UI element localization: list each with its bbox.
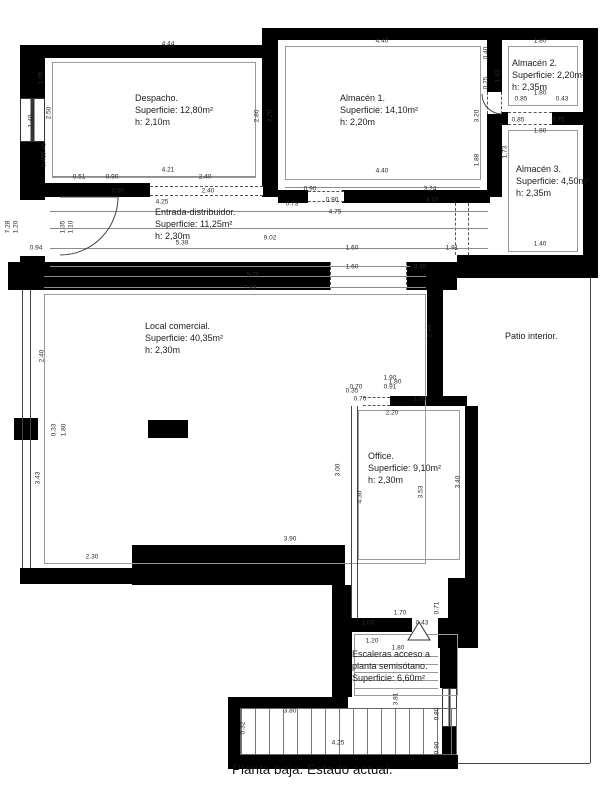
dimension-label: 1.40 bbox=[534, 241, 547, 248]
dimension-label: 3.10 bbox=[426, 197, 439, 204]
floor-plan: Despacho.Superficie: 12,80m²h: 2,10m Alm… bbox=[0, 0, 606, 789]
patio-boundary-line bbox=[457, 763, 590, 764]
dimension-label: 0.90 bbox=[112, 188, 125, 195]
dimension-label: 1.10 bbox=[68, 221, 75, 234]
dimension-label: 4.44 bbox=[162, 41, 175, 48]
dimension-label: 0.85 bbox=[512, 117, 525, 124]
dimension-label: 1.30 bbox=[414, 396, 427, 403]
dimension-label: 2.50 bbox=[46, 107, 53, 120]
dimension-label: 4.40 bbox=[376, 168, 389, 175]
dimension-label: 3.81 bbox=[393, 693, 400, 706]
dimension-label: 0.45 bbox=[414, 264, 427, 271]
dimension-label: 4.40 bbox=[376, 38, 389, 45]
room-label-local: Local comercial.Superficie: 40,35m²h: 2,… bbox=[145, 320, 223, 356]
dimension-label: 1.20 bbox=[366, 638, 379, 645]
dimension-label: 7.93 bbox=[244, 285, 257, 292]
dimension-label: 3.80 bbox=[284, 708, 297, 715]
dimension-label: 3.53 bbox=[418, 486, 425, 499]
dimension-label: 1.80 bbox=[61, 424, 68, 437]
dimension-label: 0.75 bbox=[483, 77, 490, 90]
dimension-label: 2.40 bbox=[39, 350, 46, 363]
dimension-label: 0.33 bbox=[51, 424, 58, 437]
wall bbox=[427, 278, 443, 400]
dimension-label: 3.00 bbox=[335, 464, 342, 477]
room-label-almacen3: Almacén 3.Superficie: 4,50m²h: 2,35m bbox=[516, 163, 589, 199]
wall bbox=[20, 45, 265, 58]
dimension-label: 9.02 bbox=[264, 235, 277, 242]
stair-treads bbox=[240, 708, 457, 755]
dimension-label: 1.80 bbox=[534, 128, 547, 135]
wall bbox=[228, 697, 348, 708]
dimension-line bbox=[44, 287, 426, 288]
dimension-label: 1.05 bbox=[38, 72, 45, 85]
dimension-line bbox=[50, 211, 488, 212]
wall bbox=[20, 568, 132, 584]
storefront-line bbox=[30, 290, 31, 568]
dimension-label: 0.80 bbox=[434, 708, 441, 721]
dimension-label: 2.30 bbox=[86, 554, 99, 561]
dimension-label: 1.80 bbox=[392, 645, 405, 652]
dimension-label: 3.20 bbox=[267, 110, 274, 123]
dimension-label: 0.51 bbox=[73, 174, 86, 181]
dimension-label: 3.43 bbox=[35, 472, 42, 485]
dimension-label: 2.44 bbox=[427, 325, 434, 338]
wall bbox=[465, 406, 478, 578]
wall bbox=[583, 28, 598, 278]
door-opening bbox=[487, 92, 502, 114]
dimension-label: 0.45 bbox=[41, 155, 48, 168]
dimension-label: 2.80 bbox=[254, 110, 261, 123]
dimension-label: 1.35 bbox=[60, 221, 67, 234]
dimension-label: 0.85 bbox=[515, 96, 528, 103]
dimension-label: 2.40 bbox=[199, 174, 212, 181]
dimension-label: 0.90 bbox=[434, 742, 441, 755]
dimension-label: 4.21 bbox=[162, 167, 175, 174]
dimension-label: 5.39 bbox=[176, 240, 189, 247]
room-label-almacen1: Almacén 1.Superficie: 14,10m²h: 2,20m bbox=[340, 92, 418, 128]
dimension-label: 0.75 bbox=[552, 117, 565, 124]
dimension-label: 0.70 bbox=[354, 396, 367, 403]
dimension-line bbox=[50, 248, 488, 249]
dimension-label: 7.28 bbox=[5, 221, 12, 234]
dimension-label: 1.91 bbox=[446, 245, 459, 252]
dimension-label: 4.75 bbox=[329, 209, 342, 216]
dimension-label: 3.24 bbox=[424, 186, 437, 193]
room-label-office: Office.Superficie: 9,10m²h: 2,30m bbox=[368, 450, 441, 486]
room-label-despacho: Despacho.Superficie: 12,80m²h: 2,10m bbox=[135, 92, 213, 128]
dimension-label: 0.90 bbox=[304, 186, 317, 193]
dimension-label: 0.73 bbox=[286, 201, 299, 208]
dimension-label: 1.60 bbox=[346, 245, 359, 252]
dimension-label: 1.80 bbox=[534, 90, 547, 97]
dimension-label: 1.20 bbox=[13, 221, 20, 234]
dimension-label: 3.40 bbox=[455, 476, 462, 489]
dimension-label: 0.71 bbox=[434, 602, 441, 615]
partition-line bbox=[351, 406, 352, 618]
dimension-label: 3.90 bbox=[284, 536, 297, 543]
patio-boundary-line bbox=[590, 278, 591, 763]
dimension-label: 1.70 bbox=[394, 610, 407, 617]
dimension-label: 1.80 bbox=[534, 38, 547, 45]
dimension-label: 4.25 bbox=[332, 740, 345, 747]
dimension-label: 0.94 bbox=[30, 245, 43, 252]
dimension-label: 1.43 bbox=[495, 70, 502, 83]
dimension-label: 0.70 bbox=[350, 384, 363, 391]
dimension-label: 1.88 bbox=[474, 154, 481, 167]
wall bbox=[45, 183, 150, 197]
wall bbox=[342, 190, 490, 203]
room-label-patio: Patio interior. bbox=[505, 330, 558, 342]
wall bbox=[332, 585, 352, 697]
pillar bbox=[14, 418, 38, 440]
storefront-line bbox=[22, 290, 23, 568]
dimension-label: 0.90 bbox=[106, 174, 119, 181]
dimension-label: 0.40 bbox=[483, 47, 490, 60]
dimension-label: 1.73 bbox=[502, 146, 509, 159]
dimension-label: 5.70 bbox=[247, 272, 260, 279]
wall bbox=[487, 114, 502, 197]
dimension-label: 4.30 bbox=[357, 491, 364, 504]
dimension-label: 1.80 bbox=[389, 379, 402, 386]
dimension-label: 4.25 bbox=[156, 199, 169, 206]
dimension-label: 3.20 bbox=[474, 110, 481, 123]
dimension-label: 2.20 bbox=[386, 410, 399, 417]
room-label-escaleras: Escaleras acceso aplanta semisótano.Supe… bbox=[352, 648, 430, 684]
room-label-almacen2: Almacén 2.Superficie: 2,20m²h: 2,35m bbox=[512, 57, 585, 93]
dimension-label: 0.90 bbox=[326, 197, 339, 204]
partition-line bbox=[357, 406, 358, 618]
wall bbox=[457, 255, 598, 278]
plan-title: Planta baja. Estado actual. bbox=[232, 762, 393, 777]
dimension-label: 1.40 bbox=[28, 115, 35, 128]
dimension-label: 1.03 bbox=[362, 620, 375, 627]
dimension-line bbox=[44, 276, 426, 277]
dimension-label: 0.43 bbox=[416, 620, 429, 627]
dimension-label: 1.60 bbox=[346, 264, 359, 271]
wall bbox=[262, 28, 598, 40]
dimension-label: 2.40 bbox=[202, 188, 215, 195]
dimension-label: 0.43 bbox=[556, 96, 569, 103]
room-label-entrada: Entrada-distribuidor.Superficie: 11,25m²… bbox=[155, 206, 236, 242]
dimension-line bbox=[50, 228, 488, 229]
dimension-label: 0.32 bbox=[240, 722, 247, 735]
